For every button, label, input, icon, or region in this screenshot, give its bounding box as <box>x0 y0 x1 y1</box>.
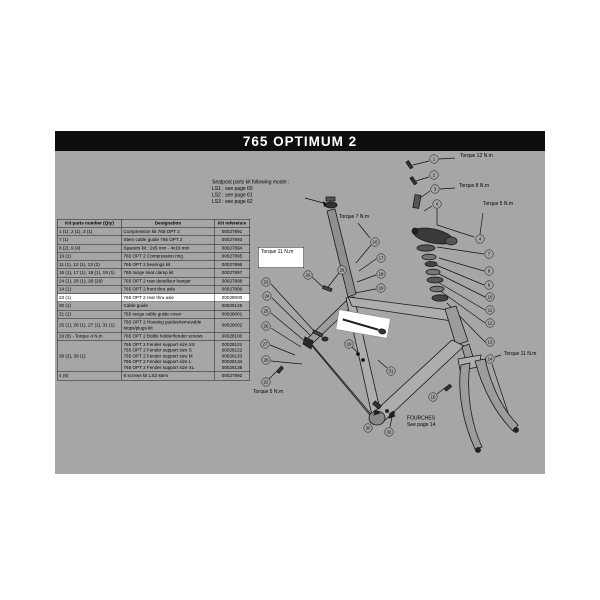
part-callout-number: 31 <box>389 369 394 374</box>
table-row: 19 (8) - Torque 4 N.m 765 OPT 2 Bottle h… <box>57 332 250 340</box>
part-callout: 15 <box>429 393 438 402</box>
part-callout-number: 29 <box>340 268 345 273</box>
part-callout-number: 20 <box>306 273 311 278</box>
part-callout: 16 <box>371 238 380 247</box>
page-title-bar: 765 OPTIMUM 2 <box>55 131 545 151</box>
table-row: 16 (1), 17 (1), 18 (1), 19 (1) 765 range… <box>57 269 250 277</box>
table-row: 25 (1), 26 (1), 27 (1), 31 (1) 765 OPT 2… <box>57 318 250 332</box>
parts-table: Kit parts number (Qty) Designation Kit r… <box>57 219 250 380</box>
torque-label: Torque 11 N.m <box>504 351 536 357</box>
fork-note-line: See page 14 <box>407 422 435 429</box>
part-callout: 24 <box>263 292 272 301</box>
cell-designation: 765 OPT 2 Compression ring <box>122 252 215 260</box>
table-row: 8 (2), 9 (4) Spacers kit : 2x5 mm - 4x10… <box>57 244 250 252</box>
part-callout-number: 14 <box>488 357 493 362</box>
seatpost-kit-note: Seatpost parts kit following model :LS1 … <box>212 179 289 205</box>
part-callout-number: 15 <box>431 395 436 400</box>
part-callout-number: 12 <box>488 321 493 326</box>
part-callout-number: 1 <box>433 157 435 162</box>
part-callout: 26 <box>262 322 271 331</box>
table-row: 20 (1) Cable guide 00025128 <box>57 302 250 310</box>
table-row: 7 (1) Stem cable guide 765 OPT 2 0002789… <box>57 236 250 244</box>
torque-label: Torque 5 N.m <box>253 389 283 395</box>
cell-parts-number: 25 (1), 26 (1), 27 (1), 31 (1) <box>57 318 122 332</box>
table-row: 1 (1), 2 (1), 3 (1) Compression kit 765 … <box>57 228 250 236</box>
part-callout-number: 32 <box>387 430 392 435</box>
cell-designation: 765 OPT 2 rear derailleur hanger <box>122 277 215 285</box>
part-callout: 3 <box>431 185 440 194</box>
part-callout: 7 <box>485 250 494 259</box>
cell-kit-reference: 00027898 <box>214 277 250 285</box>
cell-parts-number: 1 (1), 2 (1), 3 (1) <box>57 228 122 236</box>
cell-kit-reference: 00027895 <box>214 252 250 260</box>
part-callout: 19 <box>345 340 354 349</box>
part-callout: 22 <box>262 378 271 387</box>
cell-designation: 765 OPT 2 Fender support size XS 765 OPT… <box>122 341 215 372</box>
cell-kit-reference: 00027899 <box>214 285 250 293</box>
part-callout-number: 8 <box>488 269 490 274</box>
part-callout: 18 <box>377 270 386 279</box>
part-callout-number: 10 <box>488 295 493 300</box>
part-callout-number: 26 <box>264 324 269 329</box>
col-header-parts: Kit parts number (Qty) <box>57 219 122 227</box>
cell-parts-number: 23 (1) <box>57 294 122 302</box>
col-header-reference: Kit reference <box>214 219 250 227</box>
diagram-panel: Seatpost parts kit following model :LS1 … <box>55 151 545 474</box>
cell-designation: Cable guide <box>122 302 215 310</box>
part-callout-number: 13 <box>488 340 493 345</box>
cell-parts-number: 11 (1), 12 (1), 13 (2) <box>57 261 122 269</box>
part-callout-number: 2 <box>433 173 435 178</box>
part-callout: 4 <box>433 200 442 209</box>
cell-designation: Spacers kit : 2x5 mm - 4x10 mm <box>122 244 215 252</box>
parts-table-wrap: Kit parts number (Qty) Designation Kit r… <box>57 219 250 380</box>
table-row: 24 (1), 28 (1), 29 (29) 765 OPT 2 rear d… <box>57 277 250 285</box>
part-callout: 14 <box>486 355 495 364</box>
cell-designation: 765 range cable guide cover <box>122 310 215 318</box>
part-callout-number: 11 <box>488 308 492 313</box>
cell-kit-reference: 00028100 <box>214 332 250 340</box>
part-callout-number: 3 <box>434 187 436 192</box>
table-row: 10 (1) 765 OPT 2 Compression ring 000278… <box>57 252 250 260</box>
torque-label: Torque 7 N.m <box>339 214 369 220</box>
part-callout-number: 25 <box>264 309 269 314</box>
cell-parts-number: 4 (6) <box>57 372 122 380</box>
col-header-designation: Designation <box>122 219 215 227</box>
cell-kit-reference: 00027896 <box>214 261 250 269</box>
torque-label: Torque 12 N.m <box>460 153 493 159</box>
part-callout: 10 <box>486 293 495 302</box>
part-callout: 23 <box>262 278 271 287</box>
part-callout: 9 <box>485 281 494 290</box>
cell-kit-reference: 00028001 <box>214 310 250 318</box>
cell-designation: 765 OPT 2 front thru axle <box>122 285 215 293</box>
cell-designation: 765 OPT 2 rear thru axle <box>122 294 215 302</box>
part-callout: 17 <box>377 254 386 263</box>
cell-kit-reference: 00025128 <box>214 302 250 310</box>
part-callout-number: 23 <box>264 280 269 285</box>
part-callout: 20 <box>304 271 313 280</box>
table-row: 21 (1) 765 range cable guide cover 00028… <box>57 310 250 318</box>
table-row: 14 (1) 765 OPT 2 front thru axle 0002789… <box>57 285 250 293</box>
cell-parts-number: 39 (2), 38 (1) <box>57 341 122 372</box>
part-callout-number: 9 <box>488 283 490 288</box>
cell-parts-number: 24 (1), 28 (1), 29 (29) <box>57 277 122 285</box>
cell-parts-number: 8 (2), 9 (4) <box>57 244 122 252</box>
cell-designation: 765 OPT 2 bearings kit <box>122 261 215 269</box>
part-callout-number: 4 <box>436 202 438 207</box>
part-callout-number: 17 <box>379 256 384 261</box>
seatpost-kit-note-line: LS3 : see page 62 <box>212 199 289 206</box>
part-callout: 4 <box>476 235 485 244</box>
cell-designation: 6 screws kit LS3 stem <box>122 372 215 380</box>
part-callout: 28 <box>262 356 271 365</box>
part-callout: 27 <box>261 340 270 349</box>
part-callout-number: 24 <box>265 294 270 299</box>
part-callout: 1 <box>430 155 439 164</box>
part-callout: 25 <box>262 307 271 316</box>
table-row: 39 (2), 38 (1) 765 OPT 2 Fender support … <box>57 341 250 372</box>
part-callout-number: 7 <box>488 252 490 257</box>
rear-thru-axle-highlight <box>336 310 391 339</box>
part-callout: 31 <box>387 367 396 376</box>
part-callout: 12 <box>486 319 495 328</box>
cell-parts-number: 20 (1) <box>57 302 122 310</box>
table-header-row: Kit parts number (Qty) Designation Kit r… <box>57 219 250 227</box>
cell-designation: 765 OPT 2 Housing guides/removable stops… <box>122 318 215 332</box>
cell-parts-number: 14 (1) <box>57 285 122 293</box>
page-title: 765 OPTIMUM 2 <box>243 134 357 149</box>
cell-parts-number: 19 (8) - Torque 4 N.m <box>57 332 122 340</box>
cell-kit-reference: 00028002 <box>214 318 250 332</box>
part-callout: 11 <box>486 306 495 315</box>
cell-kit-reference: 00028121 00028122 00028133 00028134 0002… <box>214 341 250 372</box>
part-callout-number: 18 <box>379 272 384 277</box>
part-callout: 29 <box>338 266 347 275</box>
cell-designation: 765 range seat clamp kit <box>122 269 215 277</box>
part-callout-number: 16 <box>373 240 378 245</box>
cell-parts-number: 10 (1) <box>57 252 122 260</box>
cell-parts-number: 21 (1) <box>57 310 122 318</box>
torque-label: Torque 8 N.m <box>459 183 489 189</box>
part-callout-number: 4 <box>479 237 481 242</box>
cell-kit-reference: 00027891 <box>214 228 250 236</box>
table-row: 11 (1), 12 (1), 13 (2) 765 OPT 2 bearing… <box>57 261 250 269</box>
torque-label: Torque 11 N.m <box>258 247 304 268</box>
cell-designation: Compression kit 765 OPT 2 <box>122 228 215 236</box>
part-callout-number: 27 <box>263 342 268 347</box>
table-row: 4 (6) 6 screws kit LS3 stem 00027992 <box>57 372 250 380</box>
part-callout-number: 22 <box>264 380 269 385</box>
part-callout-number: 30 <box>366 426 371 431</box>
table-row: 23 (1) 765 OPT 2 rear thru axle 00028000 <box>57 294 250 302</box>
part-callout: 30 <box>364 424 373 433</box>
part-callout: 19 <box>377 284 386 293</box>
part-callout: 32 <box>385 428 394 437</box>
cell-parts-number: 16 (1), 17 (1), 18 (1), 19 (1) <box>57 269 122 277</box>
part-callout-number: 19 <box>347 342 352 347</box>
cell-kit-reference: 00027894 <box>214 244 250 252</box>
part-callout-number: 19 <box>379 286 384 291</box>
cell-kit-reference: 00028000 <box>214 294 250 302</box>
cell-parts-number: 7 (1) <box>57 236 122 244</box>
cell-kit-reference: 00027897 <box>214 269 250 277</box>
part-callout: 13 <box>486 338 495 347</box>
fork-note: FOURCHESSee page 14 <box>407 415 435 428</box>
part-callout-number: 28 <box>264 358 269 363</box>
cell-designation: 765 OPT 2 Bottle holder/fender screws <box>122 332 215 340</box>
cell-designation: Stem cable guide 765 OPT 2 <box>122 236 215 244</box>
torque-label: Torque 5 N.m <box>483 201 513 207</box>
part-callout: 2 <box>430 171 439 180</box>
part-callout: 8 <box>485 267 494 276</box>
cell-kit-reference: 00027893 <box>214 236 250 244</box>
leader-lines <box>269 158 514 431</box>
cell-kit-reference: 00027992 <box>214 372 250 380</box>
